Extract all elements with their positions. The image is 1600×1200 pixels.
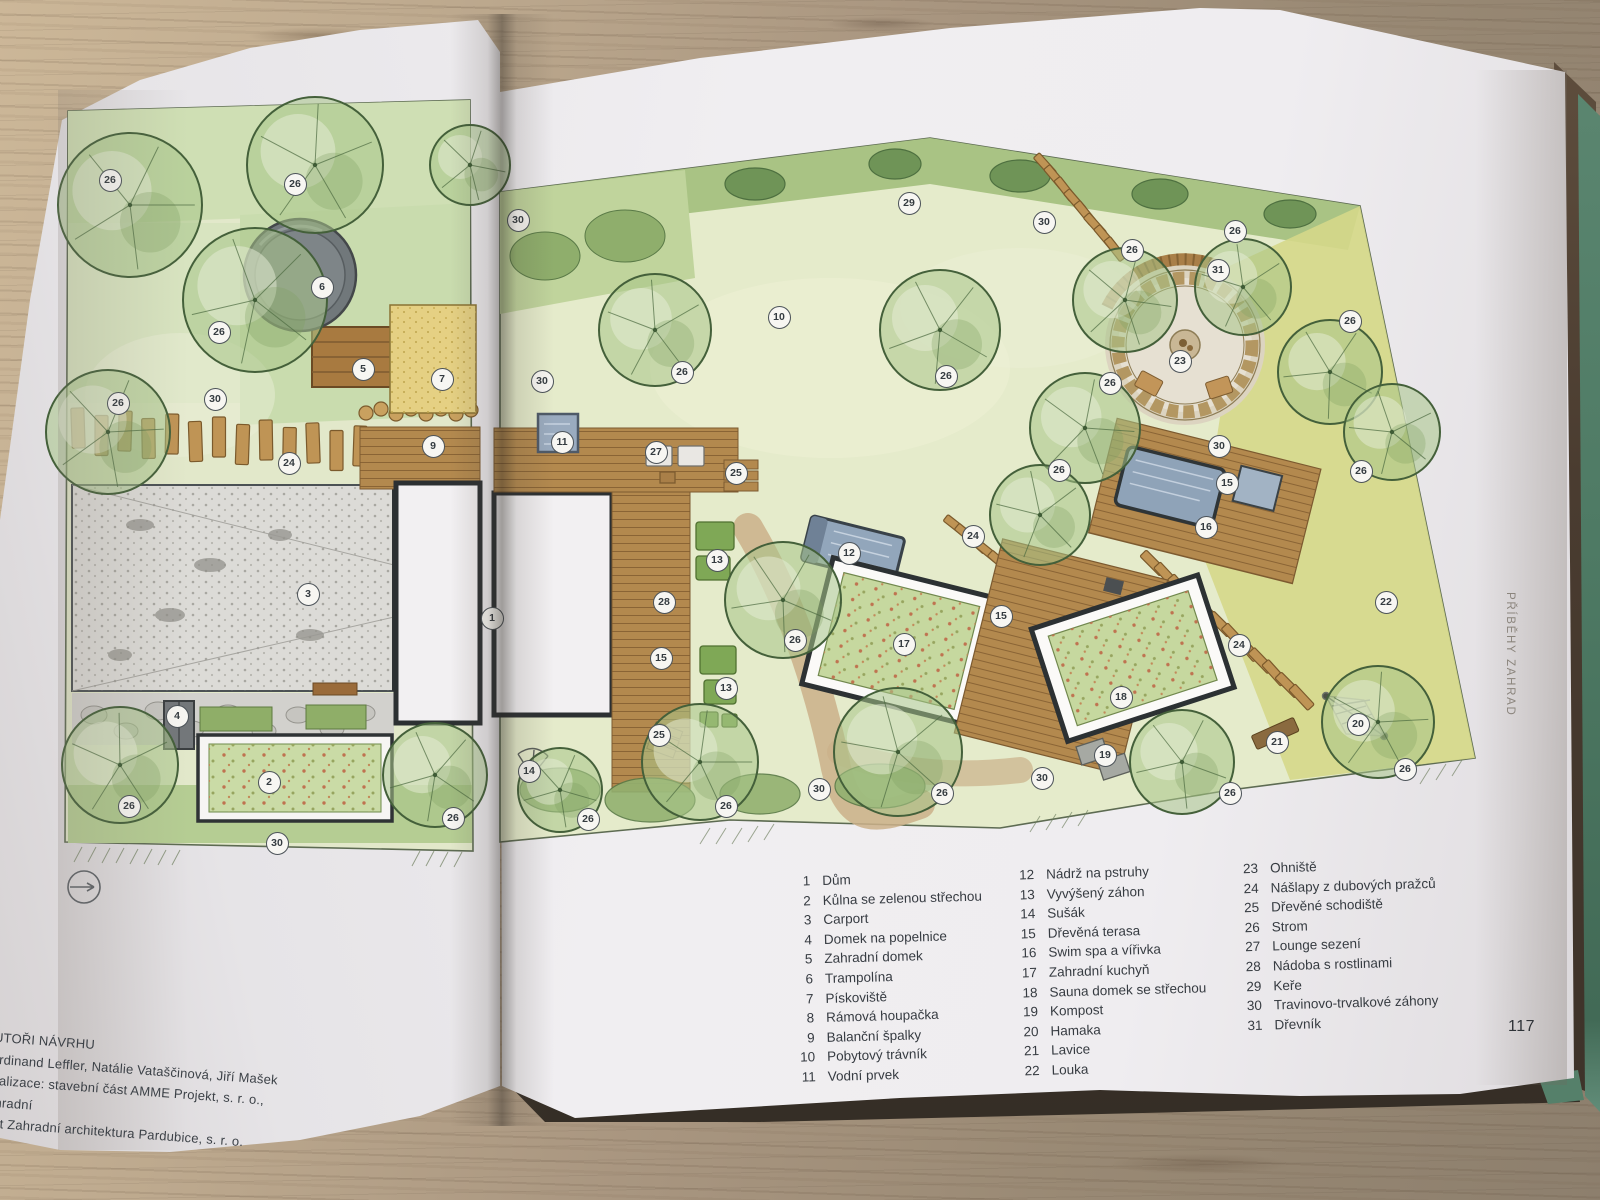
garden-plan-right-half (500, 128, 1500, 870)
legend-item-number: 2 (787, 891, 812, 911)
legend-item-label: Trampolína (825, 967, 893, 988)
legend-item-label: Rámová houpačka (826, 1005, 939, 1028)
legend-item-label: Nádoba s rostlinami (1273, 953, 1393, 976)
sleeper-step (283, 427, 297, 467)
legend-item-label: Zahradní domek (824, 947, 923, 969)
shrub (585, 210, 665, 262)
book-gutter-shadow (450, 14, 554, 1126)
hedge (306, 705, 366, 729)
green-roof-shed (198, 735, 392, 821)
legend-item-number: 12 (1010, 865, 1035, 885)
legend-item-number: 26 (1235, 918, 1260, 938)
photo-of-open-garden-design-book: 2626626573026924342262630130291026302611… (0, 0, 1600, 1200)
legend-item-label: Pískoviště (825, 987, 887, 1008)
legend-item-number: 23 (1234, 859, 1259, 879)
legend-item-label: Sušák (1047, 903, 1085, 924)
legend-item-number: 1 (786, 871, 811, 891)
legend-item-number: 7 (789, 989, 814, 1009)
legend-item-number: 14 (1011, 904, 1036, 924)
legend-item-label: Dřevník (1274, 1014, 1321, 1035)
legend-item-label: Strom (1271, 916, 1308, 937)
legend-item-number: 15 (1012, 924, 1037, 944)
legend-item-number: 9 (790, 1028, 815, 1048)
legend-item-number: 10 (791, 1048, 816, 1068)
sleeper-step (213, 417, 226, 457)
legend-item-label: Vodní prvek (827, 1065, 899, 1087)
wood-stairs (724, 460, 758, 491)
legend-item-label: Ohniště (1270, 857, 1317, 878)
legend-item-label: Kompost (1050, 1000, 1104, 1021)
legend-item-number: 20 (1014, 1022, 1039, 1042)
garden-shed (312, 327, 392, 387)
legend-item-number: 24 (1234, 878, 1259, 898)
legend-column-3: 23Ohniště24Nášlapy z dubových pražců25Dř… (1234, 853, 1470, 1075)
legend-item-label: Vyvýšený záhon (1046, 882, 1144, 904)
legend-item-number: 16 (1012, 943, 1037, 963)
legend-item-number: 4 (788, 930, 813, 950)
legend-item-number: 21 (1015, 1041, 1040, 1061)
plan-legend: 1Dům2Kůlna se zelenou střechou3Carport4D… (786, 853, 1472, 1087)
legend-item-label: Carport (823, 909, 869, 930)
legend-item-label: Keře (1273, 975, 1302, 995)
left-page-curve-shading (58, 90, 188, 1150)
legend-item-label: Dům (822, 870, 851, 890)
right-page-edge-shading (1475, 70, 1567, 1085)
sleeper-step (235, 424, 249, 464)
legend-item-number: 13 (1010, 885, 1035, 905)
legend-item-number: 31 (1238, 1016, 1263, 1036)
legend-item-label: Pobytový trávník (827, 1044, 927, 1066)
legend-item-label: Balanční špalky (826, 1025, 921, 1047)
sleeper-step (188, 421, 202, 461)
legend-item-number: 11 (791, 1067, 816, 1087)
legend-column-1: 1Dům2Kůlna se zelenou střechou3Carport4D… (786, 866, 1016, 1088)
chapter-edge-label: PŘÍBĚHY ZAHRAD (1504, 592, 1516, 717)
legend-item-number: 6 (789, 969, 814, 989)
legend-item-number: 29 (1237, 976, 1262, 996)
legend-item-number: 22 (1015, 1061, 1040, 1081)
legend-item-label: Hamaka (1050, 1020, 1101, 1041)
sleeper-step (330, 431, 343, 471)
legend-item-number: 17 (1013, 963, 1038, 983)
legend-item-label: Domek na popelnice (824, 926, 948, 949)
legend-item-number: 5 (788, 950, 813, 970)
legend-item-label: Dřevěná terasa (1048, 921, 1141, 943)
legend-item-number: 27 (1236, 937, 1261, 957)
hedge (200, 707, 272, 731)
bench (313, 683, 357, 695)
legend-item-label: Lavice (1051, 1040, 1091, 1061)
legend-item-number: 28 (1237, 957, 1262, 977)
page-number: 117 (1508, 1018, 1535, 1036)
sleeper-step (259, 420, 273, 460)
sleeper-step (306, 423, 320, 463)
trampoline (244, 219, 356, 331)
legend-column-2: 12Nádrž na pstruhy13Vyvýšený záhon14Sušá… (1010, 859, 1240, 1081)
legend-item-number: 19 (1014, 1002, 1039, 1022)
legend-item-label: Louka (1051, 1060, 1088, 1081)
legend-item-label: Lounge sezení (1272, 934, 1361, 956)
legend-item-label: Dřevěné schodiště (1271, 895, 1383, 918)
lawn-highlight (900, 248, 1140, 368)
legend-item-number: 30 (1238, 996, 1263, 1016)
legend-item-number: 25 (1235, 898, 1260, 918)
legend-item-number: 3 (787, 911, 812, 931)
legend-item-number: 8 (790, 1008, 815, 1028)
legend-item-number: 18 (1013, 983, 1038, 1003)
